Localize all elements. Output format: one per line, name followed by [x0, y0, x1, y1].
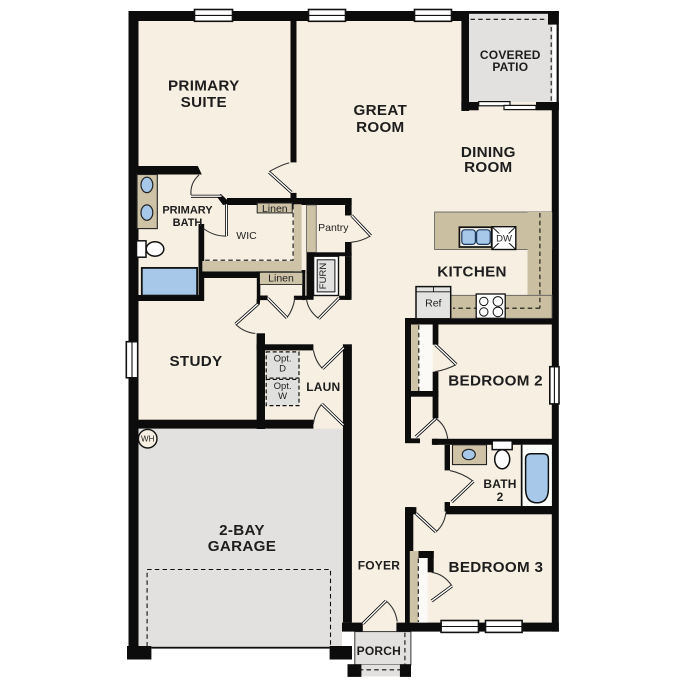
svg-text:GARAGE: GARAGE [208, 538, 276, 555]
svg-text:Linen: Linen [262, 203, 288, 215]
svg-text:Ref: Ref [425, 298, 441, 310]
svg-text:SUITE: SUITE [181, 94, 227, 111]
svg-text:KITCHEN: KITCHEN [437, 263, 507, 280]
svg-text:2: 2 [497, 490, 504, 504]
svg-text:BEDROOM 2: BEDROOM 2 [448, 373, 543, 390]
svg-text:LAUN: LAUN [306, 380, 340, 394]
svg-text:PRIMARY: PRIMARY [162, 205, 213, 217]
svg-text:W: W [278, 391, 287, 402]
svg-text:PATIO: PATIO [492, 60, 528, 74]
svg-text:WIC: WIC [236, 230, 257, 242]
svg-text:BEDROOM 3: BEDROOM 3 [449, 559, 544, 576]
svg-text:WH: WH [141, 435, 155, 444]
svg-text:STUDY: STUDY [170, 353, 223, 370]
svg-text:DW: DW [496, 233, 512, 244]
svg-text:Linen: Linen [268, 272, 294, 284]
svg-text:BATH: BATH [173, 217, 203, 229]
svg-text:GREAT: GREAT [354, 102, 408, 119]
svg-text:ROOM: ROOM [464, 159, 512, 176]
svg-text:D: D [279, 364, 286, 375]
svg-text:FURN: FURN [318, 263, 329, 290]
svg-text:PRIMARY: PRIMARY [168, 78, 240, 95]
svg-text:2-BAY: 2-BAY [219, 522, 265, 539]
svg-text:ROOM: ROOM [356, 119, 404, 136]
svg-text:FOYER: FOYER [358, 558, 400, 572]
svg-text:Pantry: Pantry [318, 222, 349, 234]
svg-text:PORCH: PORCH [357, 644, 401, 658]
